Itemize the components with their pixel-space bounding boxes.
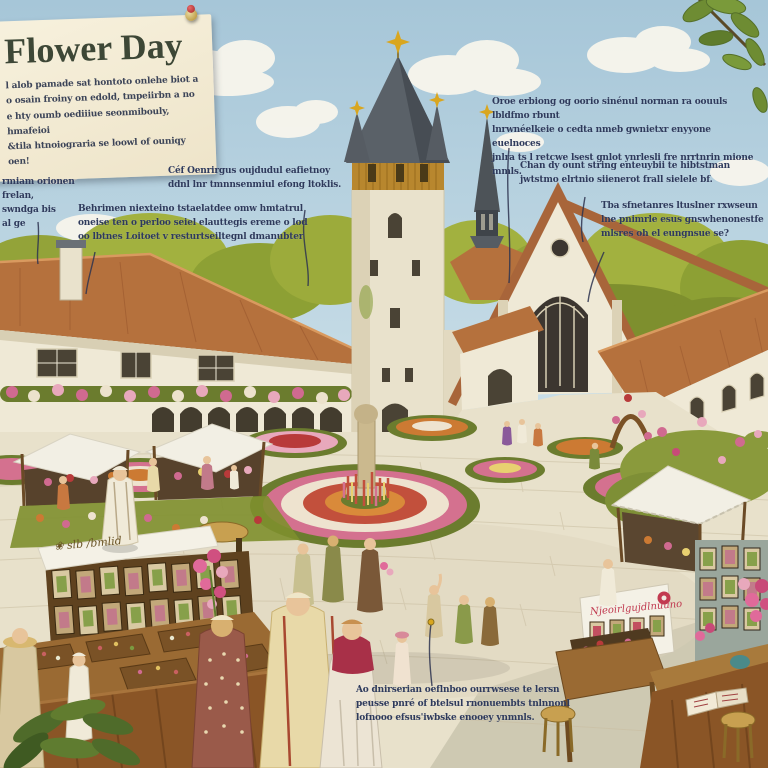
annotation-bottom-center: Ao dnirserian oeflnboo ourrwsese te lers… — [356, 684, 596, 726]
flower-bed-small-upper-right — [547, 437, 623, 459]
chimney — [60, 246, 82, 300]
flower-bed-mid-right — [465, 457, 545, 483]
flower-day-illustration: Flower Day l alob pamade sat hontoto onl… — [0, 0, 768, 768]
callout-pin — [428, 619, 434, 625]
page-title: Flower Day — [4, 27, 201, 70]
quatrefoil-window — [551, 239, 569, 257]
flower-bed-upper-center — [387, 415, 477, 441]
title-card-body: l alob pamade sat hontoto onlehe biot a … — [5, 73, 204, 172]
push-pin-icon — [185, 9, 197, 21]
annotation-chan-dy: Chan dy ount string enteuybii te hibtstm… — [520, 160, 740, 188]
annotation-behirnen: Behrimen niexteino tstaelatdee omw hmtat… — [78, 203, 318, 245]
title-card: Flower Day l alob pamade sat hontoto onl… — [0, 14, 217, 182]
patterned-woman — [192, 615, 254, 768]
porch-door — [488, 369, 512, 406]
teal-pot — [730, 655, 750, 669]
annotation-right-far: Tba sfnetanres ltuslner rxwseun lne pnim… — [601, 200, 766, 242]
annotation-beverages: Céf Oenrirgus oujdudul eafietnoy ddnl ln… — [168, 165, 358, 193]
